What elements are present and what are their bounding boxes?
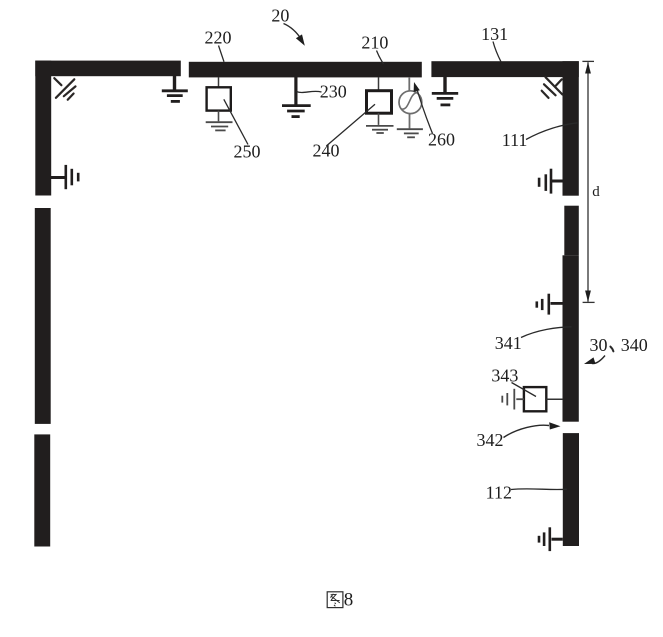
svg-text:20: 20 bbox=[271, 6, 289, 26]
svg-text:8: 8 bbox=[344, 590, 354, 611]
svg-text:210: 210 bbox=[361, 33, 388, 53]
svg-text:230: 230 bbox=[320, 82, 347, 102]
svg-text:220: 220 bbox=[205, 28, 232, 48]
svg-text:343: 343 bbox=[491, 366, 518, 386]
svg-text:341: 341 bbox=[495, 333, 522, 353]
svg-text:240: 240 bbox=[313, 141, 340, 161]
svg-text:d: d bbox=[592, 184, 600, 200]
svg-text:112: 112 bbox=[486, 483, 512, 503]
svg-text:250: 250 bbox=[234, 142, 261, 162]
svg-text:342: 342 bbox=[477, 430, 504, 450]
svg-text:30: 30 bbox=[590, 335, 608, 355]
svg-text:131: 131 bbox=[481, 24, 508, 44]
svg-text:111: 111 bbox=[502, 130, 528, 150]
svg-text:340: 340 bbox=[621, 335, 648, 355]
